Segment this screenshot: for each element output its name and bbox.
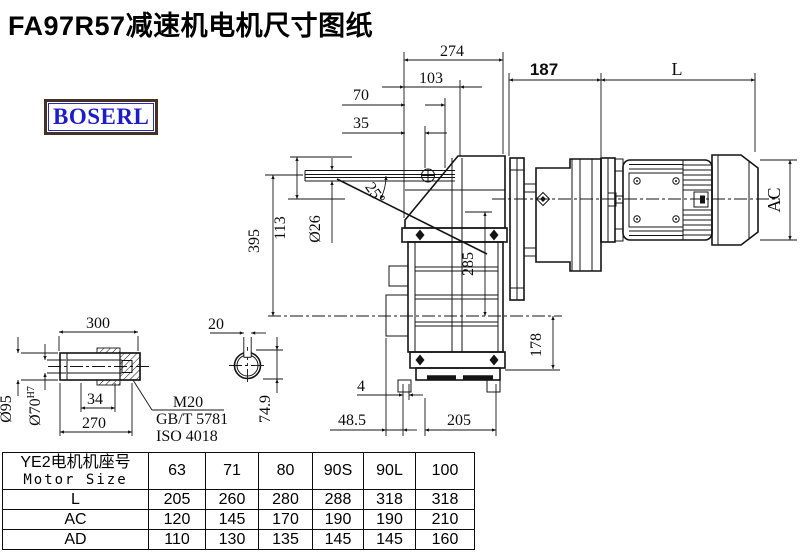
label-thread-m20: M20 xyxy=(173,394,203,411)
row-label-AC: AC xyxy=(3,510,149,530)
header-label-en: Motor Size xyxy=(3,472,148,488)
table-row-AC: AC 120 145 170 190 190 210 xyxy=(3,510,475,530)
label-std-iso: ISO 4018 xyxy=(156,428,218,445)
motor xyxy=(601,155,758,245)
cell-L-90l: 318 xyxy=(364,490,416,510)
label-std-gb: GB/T 5781 xyxy=(156,411,228,428)
dim-74-9: 74.9 xyxy=(257,395,274,423)
cell-AC-71: 145 xyxy=(206,510,259,530)
dim-34: 34 xyxy=(87,391,103,408)
dim-178: 178 xyxy=(528,333,545,357)
cell-L-90s: 288 xyxy=(313,490,364,510)
input-adapter xyxy=(510,158,536,300)
cell-AC-90l: 190 xyxy=(364,510,416,530)
dim-285: 285 xyxy=(460,252,477,276)
row-label-AD: AD xyxy=(3,530,149,550)
fan-cover xyxy=(712,155,758,245)
dim-AC: AC xyxy=(764,187,784,212)
table-header-motor-size: YE2电机机座号 Motor Size xyxy=(3,453,149,490)
row-label-L: L xyxy=(3,490,149,510)
dim-395: 395 xyxy=(246,229,263,253)
dim-113: 113 xyxy=(272,216,289,239)
header-label-cn: YE2电机机座号 xyxy=(3,454,148,472)
cell-AC-80: 170 xyxy=(259,510,313,530)
cell-AD-80: 135 xyxy=(259,530,313,550)
cell-AD-100: 160 xyxy=(416,530,475,550)
cell-L-100: 318 xyxy=(416,490,475,510)
dim-dia95: Ø95 xyxy=(0,395,15,423)
dim-70: 70 xyxy=(353,87,369,104)
dim-20: 20 xyxy=(208,316,224,333)
cell-L-80: 280 xyxy=(259,490,313,510)
table-header-row: YE2电机机座号 Motor Size 63 71 80 90S 90L 100 xyxy=(3,453,475,490)
motor-screws xyxy=(634,178,679,222)
cell-AD-90s: 145 xyxy=(313,530,364,550)
dim-L: L xyxy=(672,59,683,79)
col-80: 80 xyxy=(259,453,313,490)
table-row-L: L 205 260 280 288 318 318 xyxy=(3,490,475,510)
dim-dia26: Ø26 xyxy=(307,215,324,243)
dim-274: 274 xyxy=(440,43,464,60)
table-row-AD: AD 110 130 135 145 145 160 xyxy=(3,530,475,550)
cell-L-63: 205 xyxy=(149,490,206,510)
dim-300: 300 xyxy=(86,315,110,332)
cell-AC-100: 210 xyxy=(416,510,475,530)
torque-arm-bushing xyxy=(422,169,435,182)
cell-AD-71: 130 xyxy=(206,530,259,550)
dim-h7-tolerance: H7 xyxy=(26,386,37,398)
col-63: 63 xyxy=(149,453,206,490)
dim-dia70: Ø70 xyxy=(27,398,44,426)
motor-fins xyxy=(629,160,712,240)
cell-L-71: 260 xyxy=(206,490,259,510)
col-90s: 90S xyxy=(313,453,364,490)
dim-205: 205 xyxy=(447,412,471,429)
dim-270: 270 xyxy=(82,415,106,432)
dim-4: 4 xyxy=(357,378,365,395)
dim-35: 35 xyxy=(353,115,369,132)
motor-size-table: YE2电机机座号 Motor Size 63 71 80 90S 90L 100… xyxy=(2,452,475,550)
dim-48-5: 48.5 xyxy=(338,412,366,429)
drawing-sheet: FA97R57减速机电机尺寸图纸 BOSERL xyxy=(0,0,800,555)
dim-187: 187 xyxy=(530,60,558,79)
dim-dia70-h7: Ø70H7 xyxy=(26,386,44,426)
col-71: 71 xyxy=(206,453,259,490)
cell-AD-63: 110 xyxy=(149,530,206,550)
col-100: 100 xyxy=(416,453,475,490)
col-90l: 90L xyxy=(364,453,416,490)
cell-AC-63: 120 xyxy=(149,510,206,530)
dim-103: 103 xyxy=(419,70,443,87)
cell-AD-90l: 145 xyxy=(364,530,416,550)
r57-gear-unit xyxy=(536,159,601,271)
cell-AC-90s: 190 xyxy=(313,510,364,530)
flange-bolt-symbols xyxy=(416,230,499,366)
